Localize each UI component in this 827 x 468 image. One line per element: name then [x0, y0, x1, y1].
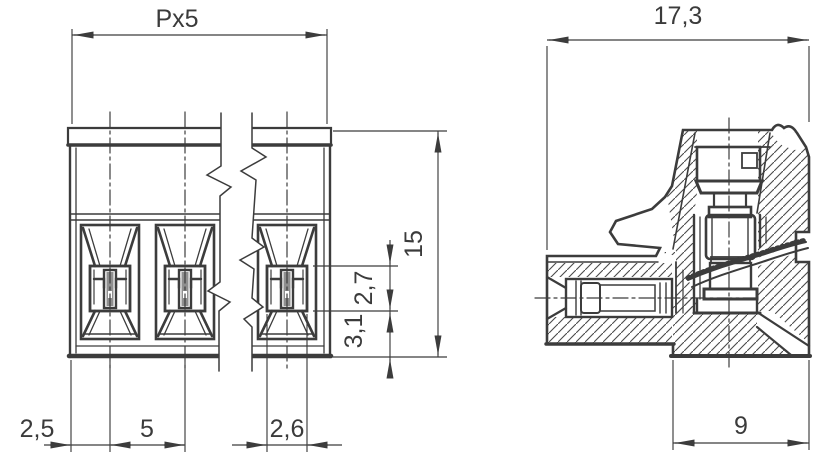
side-view: [535, 118, 810, 368]
dim-label-pole-pitch: 5: [140, 415, 154, 443]
dim-label-lower-zone-height: 3,1: [340, 314, 368, 349]
extension-lines: [71, 29, 809, 452]
dim-label-clamp-window-width: 2,6: [270, 415, 305, 443]
dim-label-edge-to-pole: 2,5: [20, 415, 55, 443]
dim-label-height-overall: 15: [400, 230, 428, 258]
dim-label-pitch-overall: Px5: [155, 5, 198, 33]
screw-head-notch: [742, 153, 757, 168]
front-top-strip: [68, 128, 331, 145]
dim-label-clamp-window-height: 2,7: [350, 271, 378, 306]
technical-drawing-canvas: Px5 17,3 15 2,7 3,1 2,5 5 2,6 9: [0, 0, 827, 468]
front-view: [68, 112, 331, 371]
terminal-block-drawing: Px5 17,3 15 2,7 3,1 2,5 5 2,6 9: [0, 0, 827, 468]
dim-label-base-depth: 9: [734, 412, 748, 440]
terminal-poles: [81, 225, 316, 339]
dim-label-depth-overall: 17,3: [654, 2, 703, 30]
